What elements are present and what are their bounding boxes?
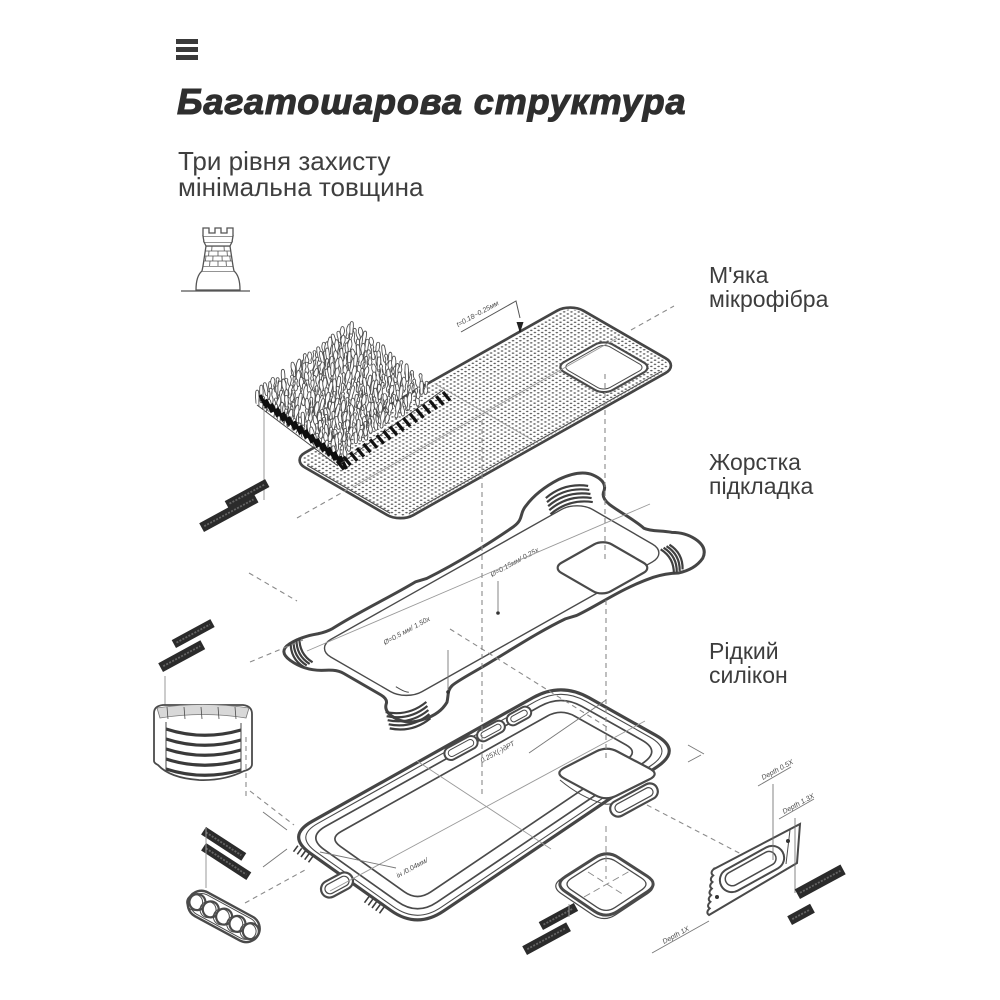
svg-text:Depth 1X: Depth 1X [662, 926, 691, 946]
svg-text:Depth 1.3X: Depth 1.3X [782, 793, 816, 816]
svg-text:Depth 0.5X: Depth 0.5X [761, 759, 795, 782]
svg-text:t=0.18~0.25мм: t=0.18~0.25мм [456, 300, 501, 329]
